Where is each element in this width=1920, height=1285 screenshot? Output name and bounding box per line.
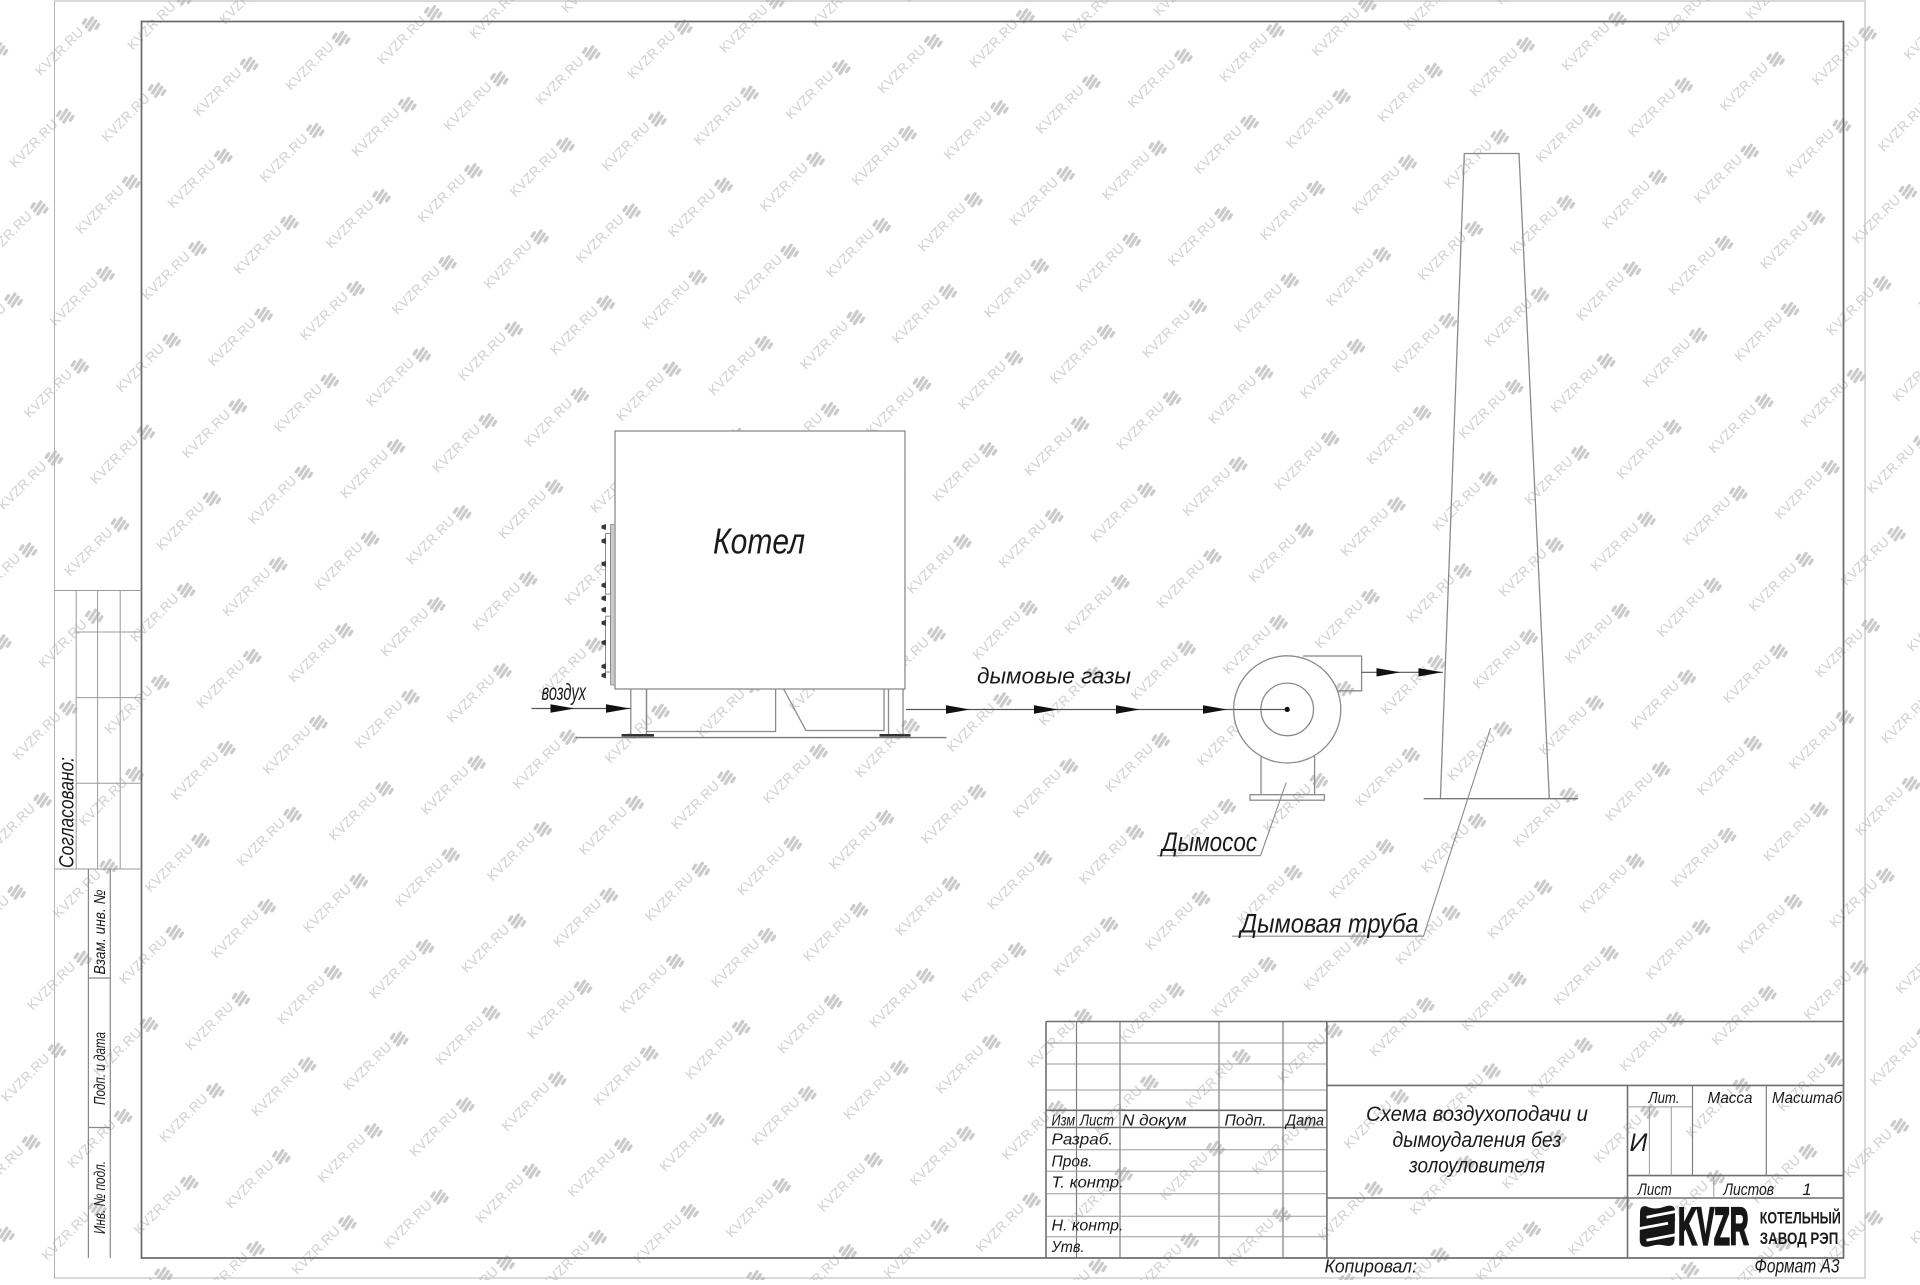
svg-text:Пров.: Пров.	[1052, 1153, 1093, 1170]
svg-text:Изм: Изм	[1052, 1113, 1076, 1130]
svg-text:золоуловителя: золоуловителя	[1408, 1155, 1545, 1178]
svg-text:Подп. и дата: Подп. и дата	[92, 1032, 109, 1105]
svg-text:Согласовано:: Согласовано:	[56, 757, 79, 868]
svg-text:Лист: Лист	[1637, 1181, 1672, 1199]
svg-text:воздух: воздух	[542, 679, 587, 705]
svg-text:N докум: N докум	[1122, 1113, 1187, 1130]
svg-text:Т. контр.: Т. контр.	[1052, 1175, 1124, 1192]
svg-text:Копировал:: Копировал:	[1325, 1257, 1418, 1277]
svg-text:Подп.: Подп.	[1225, 1113, 1267, 1130]
svg-text:KVZR: KVZR	[1678, 1196, 1749, 1256]
svg-text:ЗАВОД РЭП: ЗАВОД РЭП	[1760, 1230, 1839, 1248]
svg-text:1: 1	[1802, 1181, 1811, 1199]
svg-text:Разраб.: Разраб.	[1052, 1132, 1114, 1149]
svg-text:Масса: Масса	[1708, 1090, 1753, 1107]
svg-text:Лист: Лист	[1079, 1113, 1114, 1130]
svg-text:И: И	[1630, 1129, 1648, 1157]
svg-text:Н. контр.: Н. контр.	[1052, 1218, 1124, 1235]
svg-text:Схема воздухоподачи и: Схема воздухоподачи и	[1366, 1103, 1588, 1126]
svg-text:дымовые газы: дымовые газы	[977, 664, 1131, 689]
svg-text:КОТЕЛЬНЫЙ: КОТЕЛЬНЫЙ	[1760, 1208, 1841, 1227]
svg-text:Утв.: Утв.	[1051, 1239, 1085, 1256]
svg-text:Лит.: Лит.	[1648, 1090, 1680, 1107]
svg-text:дымоудаления без: дымоудаления без	[1393, 1129, 1562, 1152]
svg-text:Масштаб: Масштаб	[1772, 1090, 1843, 1107]
svg-text:Котел: Котел	[713, 521, 805, 562]
svg-text:Формат А3: Формат А3	[1755, 1257, 1840, 1278]
svg-text:Дата: Дата	[1284, 1113, 1324, 1130]
svg-text:Инв. № подл.: Инв. № подл.	[92, 1161, 109, 1234]
svg-text:Взам. инв. №: Взам. инв. №	[92, 890, 109, 975]
svg-text:Дымовая труба: Дымовая труба	[1238, 909, 1419, 939]
svg-text:Дымосос: Дымосос	[1160, 827, 1258, 857]
